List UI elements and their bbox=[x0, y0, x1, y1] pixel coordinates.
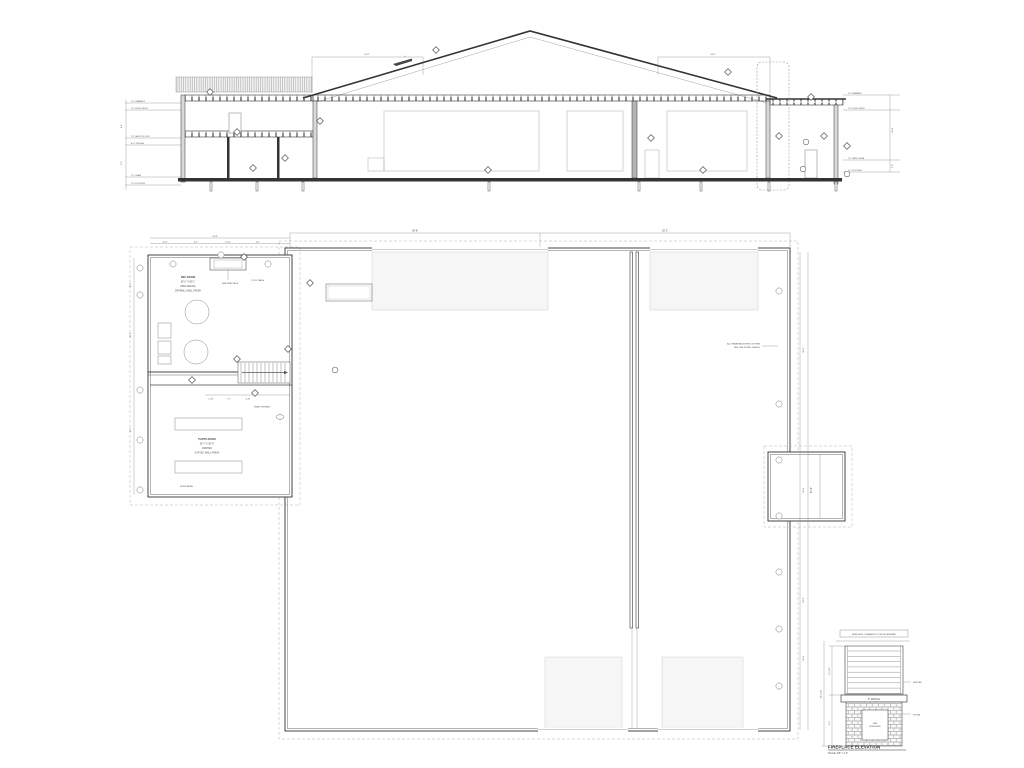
revision-cloud bbox=[757, 62, 789, 190]
datum-label: T.O. PARAPET bbox=[131, 100, 146, 103]
keynote-diamond bbox=[307, 280, 314, 287]
dim-text: 14'-0" bbox=[710, 54, 716, 56]
footing-stub bbox=[210, 182, 212, 191]
drawing-title: FIREPLACE ELEVATION bbox=[828, 745, 880, 750]
floor-slab bbox=[178, 178, 842, 191]
dim-text: 16'-0" bbox=[803, 487, 805, 493]
dim-text: 4'-1" bbox=[256, 242, 260, 244]
exterior-wall bbox=[181, 95, 185, 182]
grid-bubble bbox=[218, 252, 224, 258]
keynote-diamond bbox=[282, 155, 289, 162]
room-dims: 28'-2" X 28'-1" bbox=[181, 282, 196, 284]
wall-niche bbox=[368, 158, 384, 171]
drawing-sheet: { "colors": { "line": "#333333", "light_… bbox=[0, 0, 1024, 768]
dim-text: 2'-10" bbox=[208, 399, 214, 401]
partition-wall bbox=[227, 137, 230, 178]
overhead-door-opening bbox=[384, 111, 539, 171]
gas-fireplace-plan bbox=[210, 258, 246, 270]
fireplace-label: GAS FIREPLACE bbox=[222, 282, 239, 285]
dim-text: 10'-1 1/2" bbox=[821, 689, 823, 698]
stone-base: GAS FIREPLACE bbox=[846, 702, 902, 746]
firebox-label: FIREPLACE bbox=[869, 725, 881, 728]
grid-bubble bbox=[776, 513, 782, 519]
stair-opening-label: STAIR OPENING bbox=[254, 406, 271, 409]
concrete-aprons bbox=[372, 252, 758, 728]
dim-text: 4'-0" bbox=[892, 164, 894, 168]
grid-bubble bbox=[776, 288, 782, 294]
grid-bubble bbox=[776, 683, 782, 689]
interior-wall bbox=[630, 252, 633, 628]
dim-text: 4'-2" bbox=[829, 721, 831, 725]
keynote-diamond bbox=[700, 167, 707, 174]
keynote-circle bbox=[844, 171, 850, 177]
dim-text: 80'-8" bbox=[811, 487, 813, 493]
dim-text: 6'-1" bbox=[130, 428, 132, 432]
exterior-wall bbox=[834, 105, 838, 184]
dim-text: 8'-0" bbox=[130, 283, 132, 287]
clearance-note: FIREPLACE CLEARANCE TO BE DETERMINED bbox=[852, 633, 897, 636]
room-dims: 26'-7" X 28'-0" bbox=[200, 444, 215, 446]
right-datum-callouts: T.O. PARAPET T.O. ROOF DECK T.O. PATIO S… bbox=[843, 92, 900, 172]
mezz-door bbox=[229, 113, 241, 133]
room-name: PARTS ROOM bbox=[198, 437, 215, 441]
grid-bubble bbox=[265, 261, 271, 267]
wall-niche bbox=[645, 150, 659, 178]
grid-bubble bbox=[170, 261, 176, 267]
dim-text: 6'-1" bbox=[121, 124, 123, 128]
drawing-scale: SCALE: 3/8" = 1'-0" bbox=[828, 752, 848, 755]
mantle-label: 8" MANTLE bbox=[868, 698, 881, 701]
main-hall-section bbox=[303, 31, 777, 178]
shiplap-label: SHIPLAP bbox=[913, 681, 922, 684]
keynote-diamond bbox=[821, 133, 828, 140]
staircase bbox=[238, 362, 290, 383]
mantle: 8" MANTLE bbox=[841, 695, 907, 702]
room-finish: GYP. BD. WALL FINISH bbox=[195, 452, 220, 455]
datum-label: T.O. PARAPET bbox=[848, 92, 863, 95]
door-opening-gap bbox=[538, 728, 628, 732]
keynote-diamond bbox=[725, 69, 732, 76]
footing-stub bbox=[638, 182, 640, 191]
keynote-diamond bbox=[317, 118, 324, 125]
dim-text: 10'-3" bbox=[162, 242, 168, 244]
roof-deck-hatch bbox=[176, 77, 312, 92]
mezzanine-floor-band bbox=[185, 131, 313, 137]
keynote-diamond bbox=[485, 167, 492, 174]
grid-bubble bbox=[137, 487, 143, 493]
grid-bubble bbox=[137, 437, 143, 443]
grid-bubble bbox=[776, 457, 782, 463]
stone-label: STONE bbox=[913, 715, 921, 717]
roof-line bbox=[303, 31, 777, 98]
dim-text: 28'-8" bbox=[212, 236, 218, 238]
grid-bubble bbox=[776, 569, 782, 575]
interior-wall bbox=[636, 252, 639, 628]
datum-label: T.O. FOOTING bbox=[131, 183, 145, 185]
rebar-note: ALL REBAR ANCHORED SYSTEM bbox=[727, 343, 760, 346]
dim-text: 16'-0" bbox=[803, 597, 805, 603]
door-opening-gap bbox=[372, 247, 548, 251]
section-keynote-diamonds bbox=[207, 47, 851, 174]
keynote-circle bbox=[803, 139, 809, 145]
footing-stub bbox=[488, 182, 490, 191]
footing-stub bbox=[768, 182, 770, 191]
grid-bubble bbox=[776, 401, 782, 407]
work-area-label: WORK AREA bbox=[180, 485, 193, 488]
door-opening-gap bbox=[650, 247, 758, 251]
datum-label: B.O. CEILING bbox=[131, 143, 144, 145]
datum-label: T.O. FOOTING bbox=[848, 170, 862, 172]
grid-bubble bbox=[137, 265, 143, 271]
room-finish: PINE CEILING bbox=[180, 286, 195, 288]
door-opening-gap bbox=[658, 728, 758, 732]
keynote-diamond bbox=[250, 165, 257, 172]
keynote-circle bbox=[332, 367, 338, 373]
dim-text: 35'-2" bbox=[662, 231, 668, 233]
dim-text: 16'-0" bbox=[803, 347, 805, 353]
keynote-oval bbox=[276, 415, 284, 420]
fireplace-elevation-drawing: FIREPLACE CLEARANCE TO BE DETERMINED 8" … bbox=[810, 620, 940, 760]
dim-text: 6'-11" bbox=[225, 242, 230, 244]
overhead-door-opening bbox=[667, 111, 747, 171]
footing-stub bbox=[700, 182, 702, 191]
datum-label: T.O. PATIO SLAB bbox=[848, 157, 865, 160]
keynote-diamond bbox=[776, 133, 783, 140]
room-name: REC ROOM bbox=[181, 275, 195, 279]
dim-text: 14'-1" bbox=[130, 332, 132, 338]
footing-stub bbox=[302, 182, 304, 191]
left-wing-section bbox=[176, 77, 313, 182]
grid-bubble bbox=[776, 626, 782, 632]
keynote-diamond bbox=[648, 135, 655, 142]
dim-text: 14'-0" bbox=[364, 54, 370, 56]
dim-text: 50'-8" bbox=[412, 231, 418, 233]
firebox-label: GAS bbox=[873, 722, 878, 725]
building-section-drawing: T.O. PARAPET T.O. ROOF DECK T.O. MEZZ. F… bbox=[110, 5, 910, 200]
floor-plan-drawing: 50'-8" 35'-2" 16'-0" 16'-0" 16'-0" 16'-0… bbox=[120, 225, 820, 755]
door-opening bbox=[567, 111, 623, 171]
dim-text: 9'-1" bbox=[121, 161, 123, 165]
door bbox=[805, 150, 817, 178]
pool-table-label: POOL TABLE bbox=[252, 279, 265, 282]
dim-text: 3'-10" bbox=[245, 399, 251, 401]
eave-band bbox=[313, 95, 770, 101]
keynote-circle bbox=[800, 166, 806, 172]
keynote-diamond bbox=[433, 47, 440, 54]
dim-text: 4'-1" bbox=[194, 242, 198, 244]
dim-text: 6'-1 1/2" bbox=[829, 667, 831, 675]
firebox bbox=[862, 710, 888, 740]
roof-band bbox=[770, 99, 843, 105]
ceiling-joist-band bbox=[185, 95, 313, 101]
grid-bubble bbox=[137, 292, 143, 298]
pool-table bbox=[326, 284, 372, 301]
roof-underside bbox=[313, 37, 767, 103]
footing-stub bbox=[835, 182, 837, 191]
left-datum-callouts: T.O. PARAPET T.O. ROOF DECK T.O. MEZZ. F… bbox=[121, 100, 181, 190]
datum-label: T.O. SLAB bbox=[131, 174, 141, 177]
footing-stub bbox=[256, 182, 258, 191]
roof-dimensions: 14'-0" 14'-0" 4 bbox=[312, 54, 770, 93]
dim-text: 7'-7" bbox=[227, 399, 231, 401]
dim-text: 10'-0" bbox=[892, 127, 894, 133]
partition-wall bbox=[277, 137, 280, 178]
roof-pitch-marker bbox=[393, 59, 412, 67]
room-finish: PAINTED bbox=[202, 447, 212, 450]
hall-right-wall bbox=[766, 101, 770, 178]
shiplap-panel bbox=[845, 646, 903, 694]
datum-label: T.O. MEZZ. FLOOR bbox=[131, 136, 150, 138]
dim-text: 16'-0" bbox=[803, 655, 805, 661]
hall-left-wall bbox=[313, 101, 317, 178]
interior-wall bbox=[632, 101, 637, 178]
datum-label: T.O. ROOF DECK bbox=[131, 108, 148, 110]
rebar-note: REF. SEE DETAIL 15/A-501 bbox=[734, 346, 761, 349]
grid-bubble bbox=[137, 387, 143, 393]
keynote-diamond bbox=[844, 143, 851, 150]
datum-label: T.O. ROOF DECK bbox=[848, 108, 865, 110]
room-finish: DRYWALL WALL FINISH bbox=[175, 290, 201, 293]
